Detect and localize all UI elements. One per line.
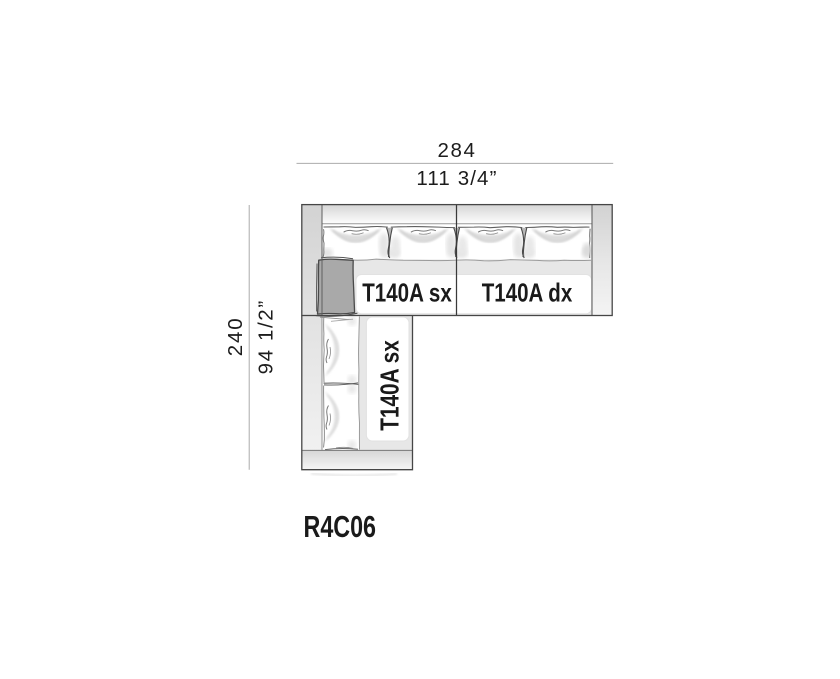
- svg-text:111 3/4”: 111 3/4”: [416, 167, 496, 190]
- svg-text:94 1/2”: 94 1/2”: [255, 301, 278, 375]
- svg-text:T140A dx: T140A dx: [482, 278, 573, 308]
- svg-text:T140A sx: T140A sx: [374, 340, 404, 431]
- svg-text:240: 240: [224, 318, 247, 356]
- svg-text:R4C06: R4C06: [304, 509, 377, 544]
- svg-text:T140A sx: T140A sx: [362, 278, 452, 308]
- svg-text:284: 284: [437, 139, 475, 162]
